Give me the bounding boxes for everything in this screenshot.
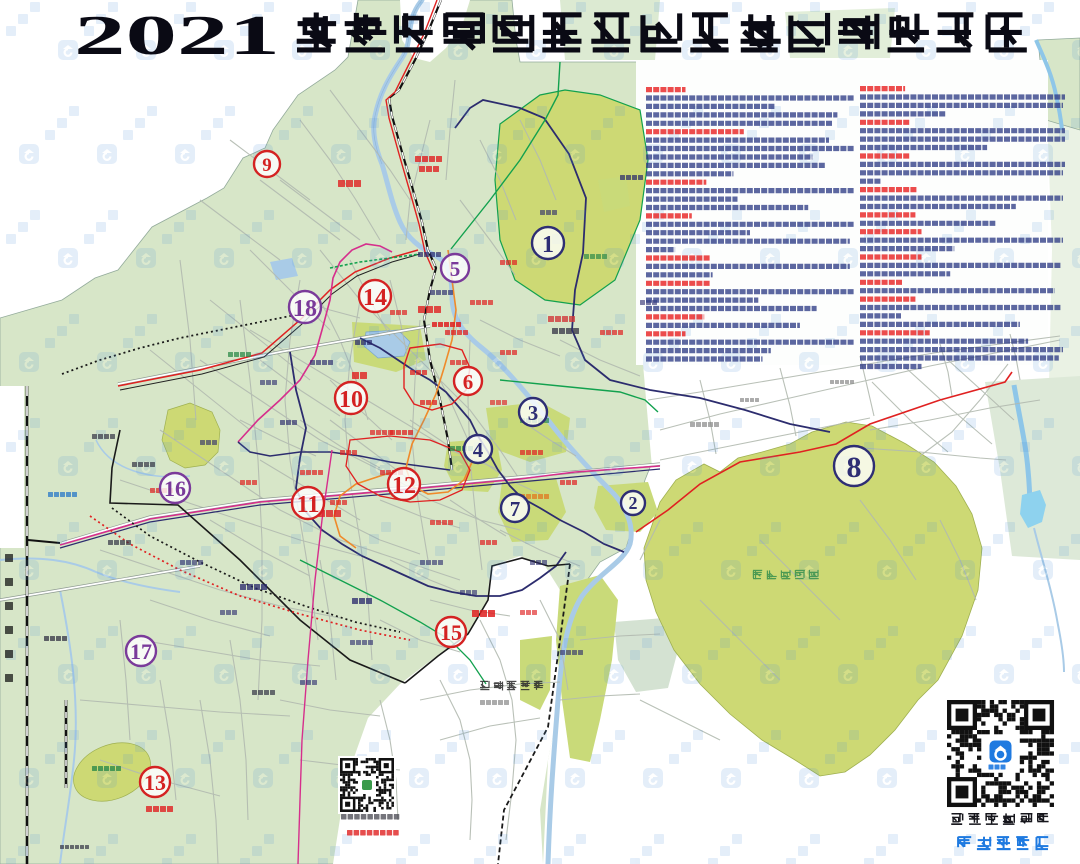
svg-text:6: 6	[463, 370, 474, 394]
svg-text:8: 8	[847, 451, 862, 484]
svg-text:9: 9	[262, 155, 272, 176]
svg-text:2021: 2021	[74, 5, 280, 67]
svg-text:14: 14	[363, 285, 387, 311]
svg-text:16: 16	[164, 476, 186, 501]
svg-text:11: 11	[297, 492, 320, 518]
svg-text:18: 18	[293, 296, 317, 322]
svg-text:1: 1	[542, 232, 554, 258]
svg-text:12: 12	[392, 473, 416, 499]
svg-text:17: 17	[130, 639, 152, 664]
svg-text:7: 7	[510, 497, 521, 521]
svg-text:13: 13	[144, 770, 166, 795]
svg-text:3: 3	[528, 401, 539, 425]
svg-text:2: 2	[629, 493, 638, 513]
svg-text:10: 10	[339, 387, 363, 413]
svg-text:15: 15	[440, 620, 462, 645]
svg-text:5: 5	[450, 257, 461, 281]
svg-text:4: 4	[473, 438, 484, 462]
